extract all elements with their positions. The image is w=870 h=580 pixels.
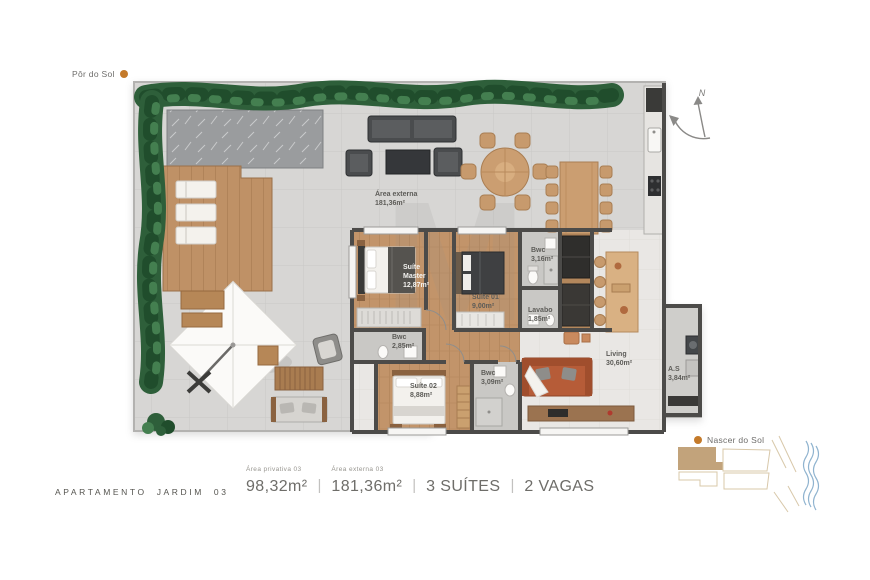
sunset-label: Pôr do Sol [72, 69, 128, 79]
apartment-title: APARTAMENTO JARDIM 03 [55, 487, 229, 497]
kitchen-counter [644, 86, 664, 234]
outdoor-sofa [271, 397, 327, 422]
spec-divider: | [318, 477, 322, 496]
spec-private-area: Área privativa 03 98,32m² [246, 466, 308, 496]
sunrise-dot-icon [694, 436, 702, 444]
sunset-text: Pôr do Sol [72, 69, 115, 79]
north-label: N [699, 88, 706, 98]
spec-parking: 2 VAGAS [524, 466, 594, 496]
footer-specs: Área privativa 03 98,32m² | Área externa… [246, 466, 594, 496]
key-plan-water [804, 441, 819, 510]
key-plan [678, 436, 819, 512]
tv-console [528, 406, 634, 421]
wardrobe-master [357, 308, 421, 327]
sun-loungers [176, 181, 216, 244]
bed-suite-master [357, 240, 415, 301]
floorplan-page: M [0, 0, 870, 580]
wardrobe-suite-02 [457, 386, 470, 428]
water-feature [167, 110, 323, 168]
bed-suite-01 [456, 252, 504, 294]
sunrise-text: Nascer do Sol [707, 435, 764, 445]
bed-suite-02 [390, 370, 446, 430]
sunrise-label: Nascer do Sol [694, 435, 764, 445]
laundry-sink [686, 360, 700, 376]
fridge [646, 88, 662, 112]
spec-divider: | [510, 477, 514, 496]
spec-suites: 3 SUÍTES [426, 466, 500, 496]
sunset-dot-icon [120, 70, 128, 78]
cooktop [648, 176, 661, 196]
accent-chair [564, 332, 579, 344]
spec-divider: | [412, 477, 416, 496]
compass-north: N [669, 88, 710, 139]
key-plan-highlight-unit [678, 447, 723, 470]
spec-external-area: Área externa 03 181,36m² [331, 466, 402, 496]
wardrobe-suite-01 [456, 312, 504, 328]
outdoor-coffee-table [275, 367, 323, 390]
